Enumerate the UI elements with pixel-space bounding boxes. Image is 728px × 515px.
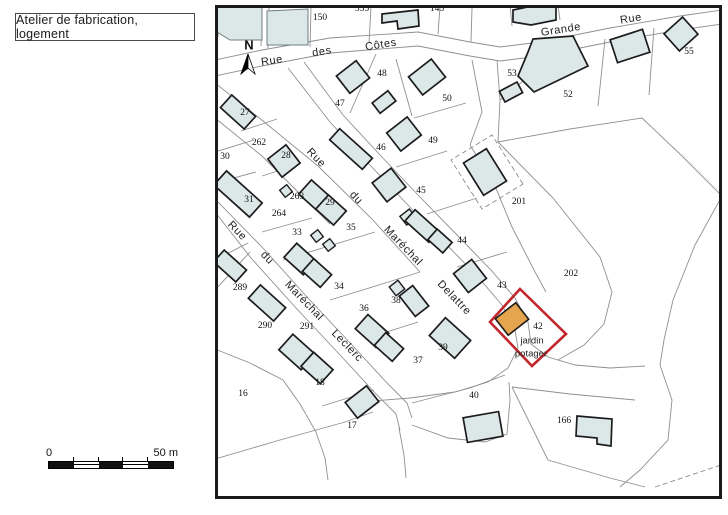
building: [499, 82, 522, 102]
map-content: 1503351455352554847504946272623028312632…: [213, 4, 727, 487]
building: [463, 412, 503, 443]
parcel-boundary-line: [215, 140, 254, 152]
parcel-boundary-line: [304, 62, 645, 368]
parcel-number: 43: [497, 281, 507, 291]
parcel-boundary-line: [598, 39, 605, 106]
scale-bar: 0 50 m: [48, 447, 174, 473]
scale-segment: [99, 462, 124, 468]
building: [610, 29, 650, 62]
building: [429, 318, 470, 359]
highlighted-building: [495, 303, 528, 336]
street-name: Rue: [260, 53, 284, 68]
street-name: du: [347, 189, 365, 207]
building: [311, 230, 324, 243]
parcel-number: 38: [391, 296, 401, 306]
parcel-number: 53: [507, 69, 517, 79]
parcel-number: 33: [292, 228, 302, 238]
parcel-boundary-line: [558, 6, 560, 20]
building: [330, 129, 373, 170]
street-name: Rue: [225, 219, 249, 243]
cadastral-map: 1503351455352554847504946272623028312632…: [0, 0, 728, 515]
parcel-number: 45: [416, 186, 426, 196]
parcel-number: 264: [272, 209, 287, 219]
parcel-boundary-line: [412, 375, 505, 403]
north-arrow-icon: [241, 54, 248, 74]
parcel-number: 202: [564, 269, 579, 279]
parcel-boundary-line: [470, 60, 482, 145]
scale-tick: [98, 457, 99, 461]
parcel-number: 30: [220, 152, 230, 162]
parcel-number: 44: [457, 236, 467, 246]
parcel-boundary-line: [288, 68, 518, 401]
building: [454, 259, 487, 292]
parcel-boundary-line: [215, 349, 283, 380]
parcel-number: 16: [238, 389, 248, 399]
parcel-boundary-line: [512, 387, 548, 460]
north-label: N: [244, 37, 253, 52]
building: [664, 17, 698, 51]
parcel-number: 35: [346, 223, 356, 233]
parcel-number: 290: [258, 321, 273, 331]
parcel-number: 50: [442, 94, 452, 104]
scale-segment: [123, 462, 148, 468]
building: [213, 250, 246, 282]
building: [214, 171, 262, 217]
building: [220, 95, 255, 129]
building: [408, 59, 445, 95]
building: [463, 149, 506, 196]
parcel-number: 291: [300, 322, 315, 332]
scale-segment: [49, 462, 74, 468]
parcel-boundary-line: [497, 60, 500, 142]
parcel-number: 49: [428, 136, 438, 146]
parcel-boundary-line: [642, 118, 722, 196]
parcel-number: 18: [315, 378, 325, 388]
parcel-boundary-line: [215, 412, 373, 459]
scale-tick: [147, 457, 148, 461]
highlight-caption-line2: potager: [515, 349, 547, 360]
parcel-number: 31: [244, 195, 254, 205]
parcel-number: 263: [290, 192, 305, 202]
building: [345, 386, 379, 418]
parcel-number: 55: [684, 47, 694, 57]
scale-tick: [73, 457, 74, 461]
cadastral-plan-page: Atelier de fabrication, logement 1503351…: [0, 0, 728, 515]
parcel-number: 29: [325, 198, 335, 208]
dashed-boundary-line: [655, 463, 727, 487]
parcel-boundary-line: [215, 118, 330, 224]
street-name: des: [311, 44, 332, 59]
scale-segment: [148, 462, 173, 468]
scale-tick: [122, 457, 123, 461]
parcel-boundary-line: [620, 365, 672, 487]
parcel-boundary-line: [498, 118, 642, 142]
parcel-number: 289: [233, 283, 248, 293]
street-name: du: [258, 249, 276, 267]
parcel-number: 39: [438, 343, 448, 353]
parcel-boundary-line: [649, 28, 654, 95]
parcel-boundary-line: [548, 460, 645, 487]
parcel-boundary-line: [427, 198, 477, 214]
building: [387, 117, 422, 151]
building: [576, 416, 612, 446]
street-name: Rue: [619, 11, 643, 26]
parcel-number: 262: [252, 138, 267, 148]
parcel-boundary-line: [382, 272, 420, 284]
parcel-number: 46: [376, 143, 386, 153]
building: [217, 6, 262, 40]
highlight-caption-line1: jardin: [519, 336, 543, 347]
parcel-number: 34: [334, 282, 344, 292]
parcel-number: 201: [512, 197, 527, 207]
highlighted-parcel-number: 42: [533, 322, 543, 332]
building: [382, 10, 419, 29]
parcel-number: 27: [240, 108, 250, 118]
building: [267, 9, 308, 45]
parcel-boundary-line: [283, 380, 328, 480]
parcel-boundary-line: [262, 218, 312, 232]
north-arrow-icon: [248, 54, 255, 74]
parcel-number: 37: [413, 356, 423, 366]
parcel-number: 36: [359, 304, 369, 314]
building: [323, 239, 336, 252]
parcel-number: 28: [281, 151, 291, 161]
parcel-boundary-line: [510, 5, 512, 26]
parcel-boundary-line: [396, 151, 447, 167]
parcel-number: 166: [557, 416, 572, 426]
scale-start-label: 0: [46, 447, 52, 459]
parcel-boundary-line: [660, 196, 722, 365]
building: [518, 36, 588, 92]
parcel-boundary-line: [471, 8, 472, 42]
parcel-number: 40: [469, 391, 479, 401]
building: [372, 91, 396, 114]
scale-segment: [74, 462, 99, 468]
parcel-boundary-line: [396, 59, 412, 116]
parcel-number: 52: [563, 90, 573, 100]
parcel-number: 17: [347, 421, 357, 431]
parcel-boundary-line: [512, 387, 635, 400]
parcel-boundary-line: [369, 7, 371, 43]
parcel-boundary-line: [414, 103, 466, 118]
parcel-number: 150: [313, 13, 328, 23]
parcel-number: 48: [377, 69, 387, 79]
parcel-number: 47: [335, 99, 345, 109]
parcel-boundary-line: [399, 428, 406, 478]
building: [336, 61, 369, 94]
scale-bar-segments: [48, 461, 174, 469]
scale-end-label: 50 m: [154, 447, 178, 459]
